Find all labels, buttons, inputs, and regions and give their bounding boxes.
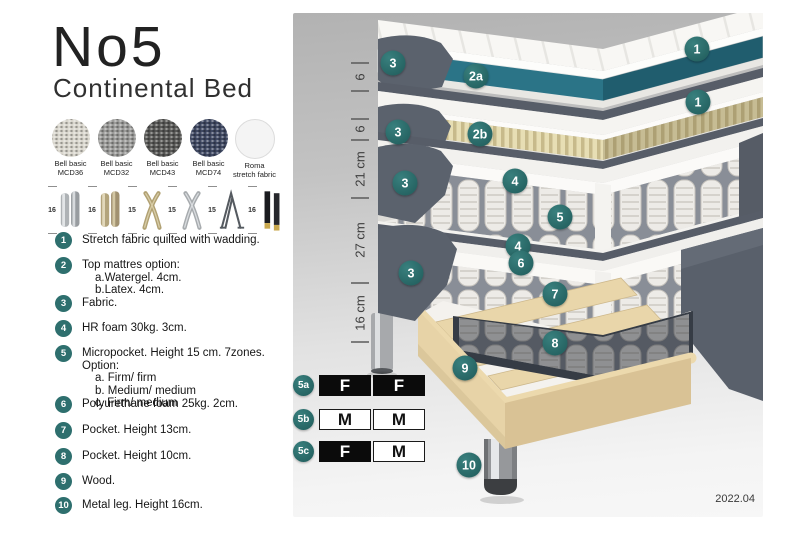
feature-text: HR foam 30kg. 3cm. (82, 322, 187, 335)
tick-icon (168, 186, 177, 187)
cylinder-gold-leg-icon (98, 186, 126, 234)
feature-item: 9 Wood. (55, 473, 295, 490)
fabric-swatch-label: Bell basicMCD74 (192, 160, 224, 177)
feature-text: Stretch fabric quilted with wadding. (82, 234, 260, 247)
feature-number-badge: 7 (55, 422, 72, 439)
product-sheet: No5 Continental Bed Bell basicMCD36 Bell… (0, 0, 800, 533)
callout-badge: 3 (381, 51, 406, 76)
leg-height: 15 (128, 207, 136, 214)
callout-badge: 5 (548, 205, 573, 230)
fabric-code: MCD43 (150, 168, 175, 177)
measurement-ruler: 6 6 21 cm 27 cm 16 cm (351, 63, 369, 342)
fabric-swatch-circle (52, 119, 90, 157)
callout-badge: 10 (457, 453, 482, 478)
bed-diagram-panel: 6 6 21 cm 27 cm 16 cm (293, 13, 763, 517)
feature-number-badge: 6 (55, 396, 72, 413)
firmness-option-badge: 5b (293, 409, 314, 430)
measurement-label: 6 (353, 73, 368, 80)
hairpin-leg-icon (218, 186, 246, 234)
fabric-swatches: Bell basicMCD36 Bell basicMCD32 Bell bas… (49, 119, 276, 179)
firmness-cell: M (319, 409, 371, 430)
measurement-label: 6 (353, 125, 368, 132)
callout-badge: 3 (393, 171, 418, 196)
fabric-swatch-circle (144, 119, 182, 157)
fabric-code: MCD32 (104, 168, 129, 177)
callout-badge: 6 (509, 251, 534, 276)
fabric-swatch-circle (98, 119, 136, 157)
callout-badge: 9 (453, 356, 478, 381)
feature-item: 4 HR foam 30kg. 3cm. (55, 320, 295, 337)
leg-height: 15 (168, 207, 176, 214)
callout-badge: 2b (468, 122, 493, 147)
tick-icon (128, 186, 137, 187)
firmness-row: 5c F M (293, 441, 425, 462)
callout-badge: 1 (686, 90, 711, 115)
firmness-cell: F (319, 441, 371, 462)
callout-badge: 3 (386, 120, 411, 145)
feature-text: Fabric. (82, 297, 117, 310)
leg-option: 16 (246, 183, 286, 237)
back-metal-leg (371, 313, 393, 374)
product-subtitle: Continental Bed (53, 73, 253, 104)
fabric-swatch: Bell basicMCD32 (95, 119, 138, 179)
tick-icon (88, 186, 97, 187)
fabric-swatch: Bell basicMCD43 (141, 119, 184, 179)
fabric-swatch-label: Bell basicMCD36 (54, 160, 86, 177)
tick-icon (248, 186, 257, 187)
feature-item: 1 Stretch fabric quilted with wadding. (55, 232, 295, 249)
feature-number-badge: 1 (55, 232, 72, 249)
tick-icon (208, 186, 217, 187)
feature-item: 3 Fabric. (55, 295, 295, 312)
leg-height: 15 (208, 207, 216, 214)
feature-subitem: a.Watergel. 4cm. (95, 272, 182, 285)
fabric-swatch-label: Bell basicMCD43 (146, 160, 178, 177)
feature-text: Pocket. Height 10cm. (82, 450, 191, 463)
feature-text: Metal leg. Height 16cm. (82, 499, 203, 512)
leg-height: 16 (248, 207, 256, 214)
measurement-label: 16 cm (353, 295, 368, 330)
feature-number-badge: 10 (55, 497, 72, 514)
firmness-row: 5b M M (293, 409, 425, 430)
leg-options: 16 16 15 15 (46, 183, 286, 237)
fabric-swatch-circle (235, 119, 275, 159)
feature-text: Pocket. Height 13cm. (82, 424, 191, 437)
fabric-swatch: Romastretch fabric (233, 119, 276, 179)
front-metal-leg (484, 439, 517, 495)
cross-gold-leg-icon (138, 186, 166, 234)
leg-option: 15 (166, 183, 206, 237)
black-gold-leg-icon (258, 186, 286, 234)
measurement-label: 27 cm (353, 222, 368, 257)
callout-badge: 3 (399, 261, 424, 286)
feature-subitem: a. Firm/ firm (95, 372, 295, 385)
version-label: 2022.04 (715, 493, 755, 505)
feature-item: 7 Pocket. Height 13cm. (55, 422, 295, 439)
feature-number-badge: 9 (55, 473, 72, 490)
firmness-option-badge: 5a (293, 375, 314, 396)
feature-item: 10 Metal leg. Height 16cm. (55, 497, 295, 514)
measurement-label: 21 cm (353, 151, 368, 186)
leg-height: 16 (88, 207, 96, 214)
feature-text: Micropocket. Height 15 cm. 7zones. Optio… (82, 347, 295, 372)
callout-badge: 7 (543, 282, 568, 307)
tick-icon (48, 186, 57, 187)
fabric-code: MCD36 (58, 168, 83, 177)
feature-number-badge: 2 (55, 257, 72, 274)
firmness-cell: M (373, 441, 425, 462)
leg-option: 15 (206, 183, 246, 237)
feature-item: 2 Top mattres option: a.Watergel. 4cm. b… (55, 257, 295, 297)
callout-badge: 1 (685, 37, 710, 62)
fabric-swatch-label: Bell basicMCD32 (100, 160, 132, 177)
leg-shadow (480, 496, 524, 504)
firmness-cell: M (373, 409, 425, 430)
feature-text: Wood. (82, 475, 115, 488)
fabric-swatch: Bell basicMCD36 (49, 119, 92, 179)
feature-number-badge: 3 (55, 295, 72, 312)
firmness-cell: F (373, 375, 425, 396)
firmness-option-badge: 5c (293, 441, 314, 462)
feature-number-badge: 4 (55, 320, 72, 337)
firmness-cell: F (319, 375, 371, 396)
callout-badge: 2a (464, 64, 489, 89)
callout-badge: 4 (503, 169, 528, 194)
product-title: No5 (52, 14, 166, 80)
leg-option: 16 (46, 183, 86, 237)
fabric-swatch: Bell basicMCD74 (187, 119, 230, 179)
feature-text: Top mattres option: (82, 259, 182, 272)
fabric-code: MCD74 (196, 168, 221, 177)
cylinder-silver-leg-icon (58, 186, 86, 234)
fabric-swatch-circle (190, 119, 228, 157)
leg-height: 16 (48, 207, 56, 214)
fabric-swatch-label: Romastretch fabric (233, 162, 276, 179)
feature-number-badge: 8 (55, 448, 72, 465)
leg-option: 16 (86, 183, 126, 237)
feature-number-badge: 5 (55, 345, 72, 362)
callout-badge: 8 (543, 331, 568, 356)
firmness-row: 5a F F (293, 375, 425, 396)
feature-item: 6 Polyurethane foam 25kg. 2cm. (55, 396, 295, 413)
fabric-code: stretch fabric (233, 170, 276, 179)
leg-option: 15 (126, 183, 166, 237)
feature-text: Polyurethane foam 25kg. 2cm. (82, 398, 238, 411)
cross-silver-leg-icon (178, 186, 206, 234)
feature-item: 8 Pocket. Height 10cm. (55, 448, 295, 465)
